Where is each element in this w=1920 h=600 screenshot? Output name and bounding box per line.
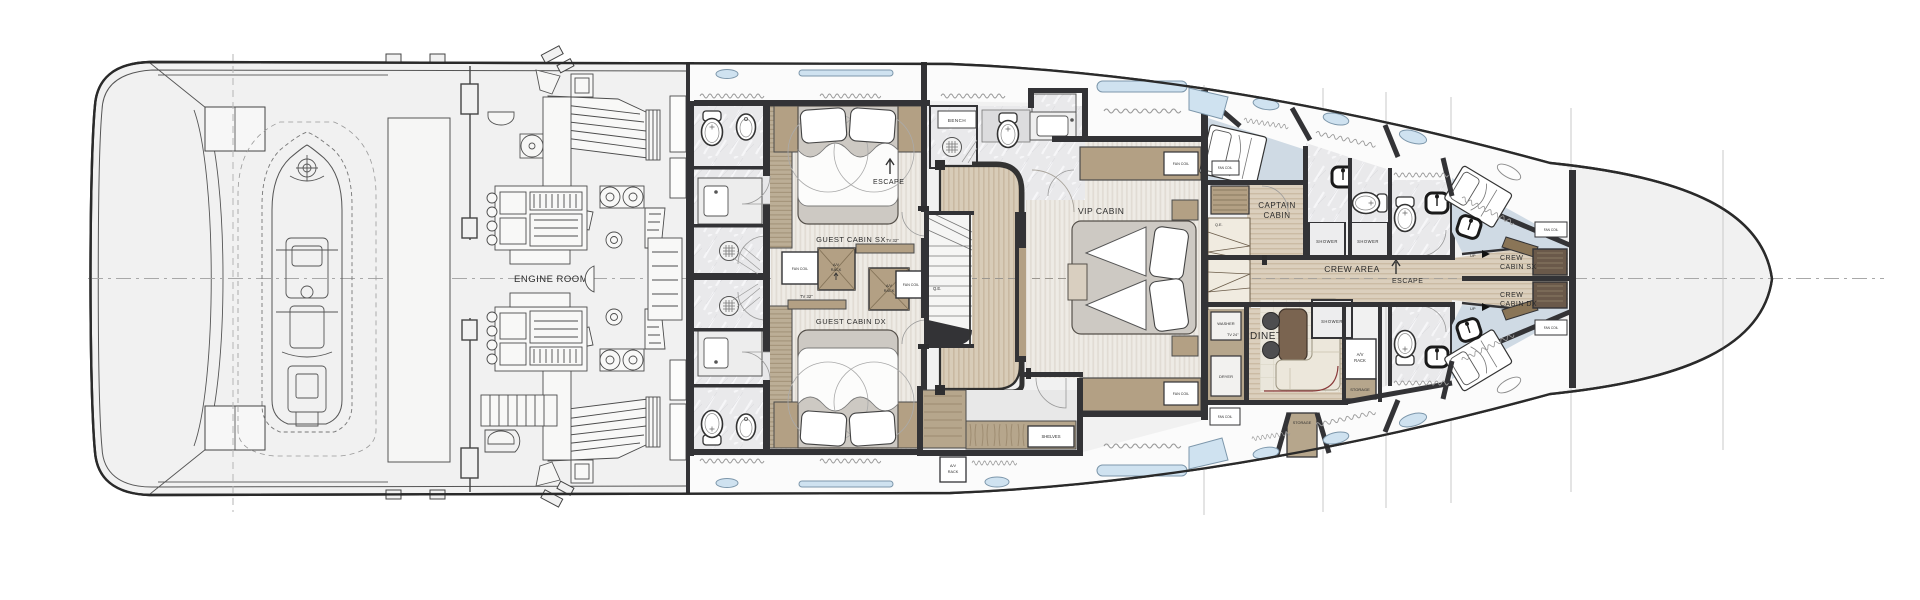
svg-text:Q.E.: Q.E. (933, 286, 941, 291)
svg-text:STORAGE: STORAGE (1350, 387, 1370, 392)
svg-text:WASHER: WASHER (1217, 321, 1235, 326)
svg-text:CABIN SX: CABIN SX (1500, 264, 1537, 271)
svg-text:A/V: A/V (886, 284, 893, 288)
svg-text:FAN COIL: FAN COIL (903, 283, 919, 287)
svg-text:FAN COIL: FAN COIL (1544, 228, 1559, 232)
svg-text:BENCH: BENCH (948, 118, 966, 123)
svg-text:VIP CABIN: VIP CABIN (1078, 206, 1124, 216)
svg-text:TV 32": TV 32" (886, 238, 899, 243)
svg-text:RACK: RACK (831, 268, 842, 272)
svg-text:Q.E.: Q.E. (1215, 223, 1223, 227)
svg-text:CAPTAIN: CAPTAIN (1258, 201, 1296, 210)
svg-text:A/V: A/V (1357, 352, 1364, 357)
svg-text:FAN COIL: FAN COIL (1544, 326, 1559, 330)
svg-text:TV 32": TV 32" (800, 294, 813, 299)
svg-text:GUEST CABIN SX: GUEST CABIN SX (816, 235, 886, 244)
svg-text:RACK: RACK (948, 470, 959, 474)
svg-text:STORAGE: STORAGE (1293, 421, 1312, 425)
svg-text:FAN COIL: FAN COIL (792, 267, 808, 271)
svg-text:ESCAPE: ESCAPE (873, 179, 904, 186)
svg-text:FAN COIL: FAN COIL (1173, 162, 1189, 166)
svg-text:ENGINE ROOM: ENGINE ROOM (514, 274, 588, 285)
svg-text:SHOWER: SHOWER (1316, 239, 1338, 244)
svg-text:FAN COIL: FAN COIL (1218, 415, 1233, 419)
svg-text:CREW: CREW (1500, 255, 1523, 262)
svg-text:CREW AREA: CREW AREA (1324, 264, 1380, 274)
svg-text:FAN COIL: FAN COIL (1218, 166, 1233, 170)
svg-text:SHOWER: SHOWER (1357, 239, 1379, 244)
svg-text:A/V: A/V (950, 464, 957, 468)
svg-text:A/V: A/V (833, 263, 840, 267)
svg-text:TV 24": TV 24" (1227, 333, 1239, 337)
svg-text:RACK: RACK (884, 289, 895, 293)
svg-text:UP: UP (1470, 306, 1476, 311)
svg-text:CREW: CREW (1500, 292, 1523, 299)
svg-text:CABIN: CABIN (1264, 211, 1291, 220)
svg-text:UP: UP (1470, 253, 1476, 258)
svg-text:RACK: RACK (1354, 358, 1366, 363)
svg-text:ESCAPE: ESCAPE (1392, 278, 1423, 285)
svg-text:DRYER: DRYER (1219, 374, 1233, 379)
svg-text:SHELVES: SHELVES (1041, 434, 1060, 439)
svg-text:SHOWER: SHOWER (1321, 319, 1343, 324)
svg-text:CABIN DX: CABIN DX (1500, 301, 1537, 308)
svg-text:FAN COIL: FAN COIL (1173, 392, 1189, 396)
svg-text:GUEST CABIN DX: GUEST CABIN DX (816, 317, 886, 326)
